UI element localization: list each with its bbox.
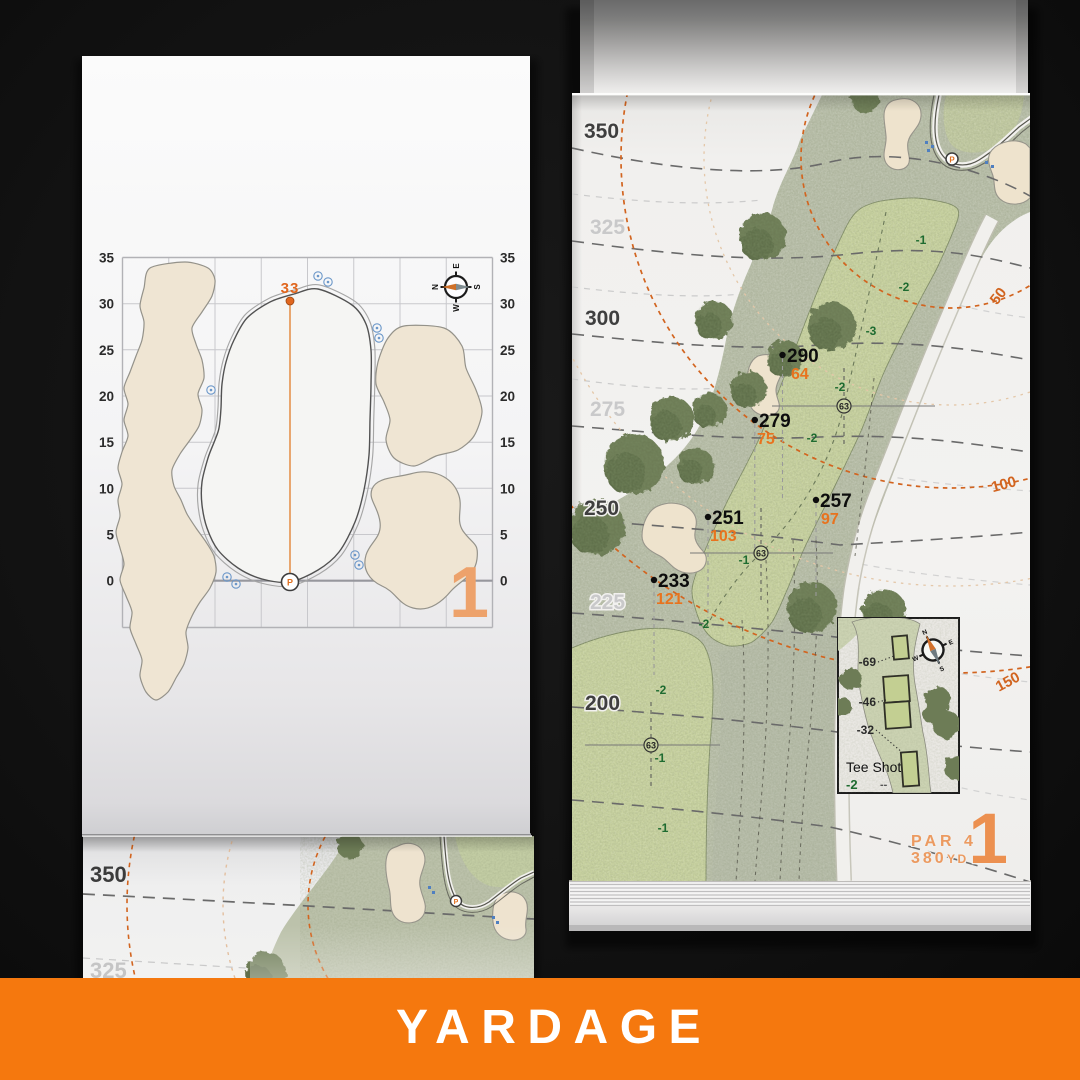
- svg-text:64: 64: [791, 366, 809, 383]
- svg-text:63: 63: [839, 402, 849, 412]
- svg-text:15: 15: [500, 435, 516, 450]
- svg-text:30: 30: [99, 297, 114, 312]
- svg-text:-2: -2: [656, 683, 667, 697]
- svg-text:E: E: [452, 263, 461, 269]
- svg-text:W: W: [452, 304, 461, 312]
- svg-text:--: --: [880, 779, 888, 791]
- svg-text:33: 33: [281, 280, 300, 297]
- svg-text:-2: -2: [807, 431, 818, 445]
- svg-text:251: 251: [712, 508, 744, 529]
- svg-text:97: 97: [821, 511, 839, 528]
- svg-text:63: 63: [646, 741, 656, 751]
- svg-text:P: P: [287, 578, 293, 588]
- svg-text:-1: -1: [739, 553, 750, 567]
- svg-text:-2: -2: [846, 777, 858, 792]
- svg-text:P: P: [454, 899, 459, 906]
- svg-text:5: 5: [500, 528, 508, 543]
- svg-text:15: 15: [99, 435, 115, 450]
- svg-text:121: 121: [656, 591, 683, 608]
- svg-text:30: 30: [500, 297, 515, 312]
- svg-text:0: 0: [106, 574, 114, 589]
- svg-text:200: 200: [585, 692, 620, 715]
- svg-text:0: 0: [500, 574, 508, 589]
- svg-text:YD: YD: [947, 852, 969, 866]
- svg-text:-1: -1: [916, 233, 927, 247]
- svg-text:257: 257: [820, 491, 852, 512]
- svg-text:PAR 4: PAR 4: [911, 833, 977, 850]
- svg-text:P: P: [949, 156, 955, 165]
- svg-text:-2: -2: [835, 380, 846, 394]
- svg-text:300: 300: [585, 307, 620, 330]
- svg-text:103: 103: [710, 528, 737, 545]
- svg-text:275: 275: [590, 398, 625, 421]
- svg-text:250: 250: [584, 497, 619, 520]
- svg-text:10: 10: [500, 481, 515, 496]
- svg-text:350: 350: [90, 862, 127, 887]
- svg-text:233: 233: [658, 571, 690, 592]
- svg-text:1: 1: [449, 553, 489, 633]
- svg-text:-2: -2: [699, 617, 710, 631]
- svg-text:35: 35: [99, 251, 115, 266]
- svg-text:S: S: [473, 284, 482, 290]
- svg-text:350: 350: [584, 120, 619, 143]
- svg-text:325: 325: [590, 216, 625, 239]
- svg-text:25: 25: [500, 343, 516, 358]
- svg-text:35: 35: [500, 251, 516, 266]
- svg-text:5: 5: [106, 528, 114, 543]
- svg-text:10: 10: [99, 481, 114, 496]
- svg-text:Tee Shot: Tee Shot: [846, 759, 901, 775]
- svg-text:-2: -2: [899, 280, 910, 294]
- svg-text:75: 75: [757, 431, 775, 448]
- svg-text:N: N: [431, 284, 440, 290]
- svg-text:-1: -1: [658, 821, 669, 835]
- svg-text:1: 1: [969, 800, 1009, 879]
- svg-text:-69: -69: [859, 655, 877, 669]
- svg-text:-46: -46: [859, 695, 877, 709]
- svg-text:279: 279: [759, 411, 791, 432]
- svg-text:63: 63: [756, 549, 766, 559]
- svg-text:-1: -1: [655, 751, 666, 765]
- svg-text:YARDAGE: YARDAGE: [396, 1001, 712, 1054]
- svg-text:20: 20: [500, 389, 515, 404]
- svg-text:20: 20: [99, 389, 114, 404]
- svg-text:-3: -3: [866, 324, 877, 338]
- svg-text:290: 290: [787, 346, 819, 367]
- svg-text:380: 380: [911, 850, 947, 867]
- svg-text:25: 25: [99, 343, 115, 358]
- svg-text:225: 225: [590, 591, 625, 614]
- svg-text:-32: -32: [857, 723, 875, 737]
